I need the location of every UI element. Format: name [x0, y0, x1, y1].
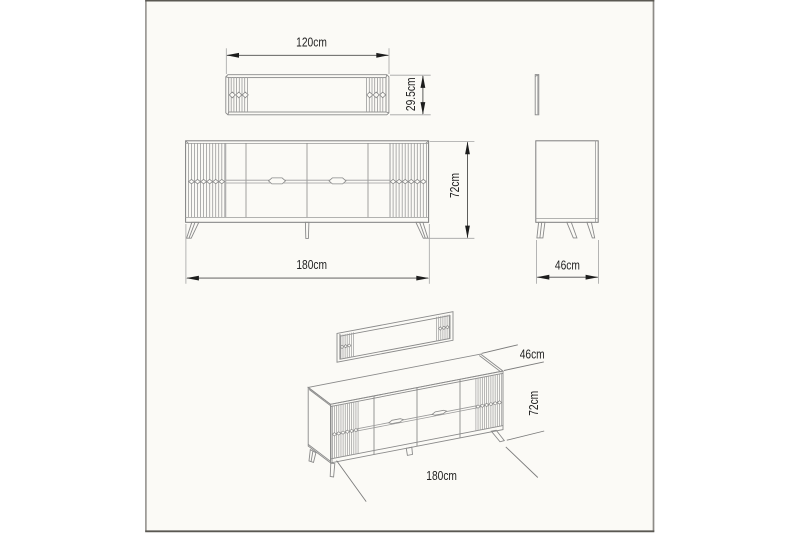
svg-text:29.5cm: 29.5cm: [405, 78, 418, 112]
svg-text:180cm: 180cm: [426, 470, 457, 483]
svg-text:180cm: 180cm: [296, 259, 327, 272]
svg-text:120cm: 120cm: [296, 36, 327, 49]
svg-text:72cm: 72cm: [449, 173, 462, 198]
svg-text:72cm: 72cm: [528, 391, 541, 416]
svg-text:46cm: 46cm: [520, 348, 545, 361]
svg-text:46cm: 46cm: [555, 259, 580, 272]
